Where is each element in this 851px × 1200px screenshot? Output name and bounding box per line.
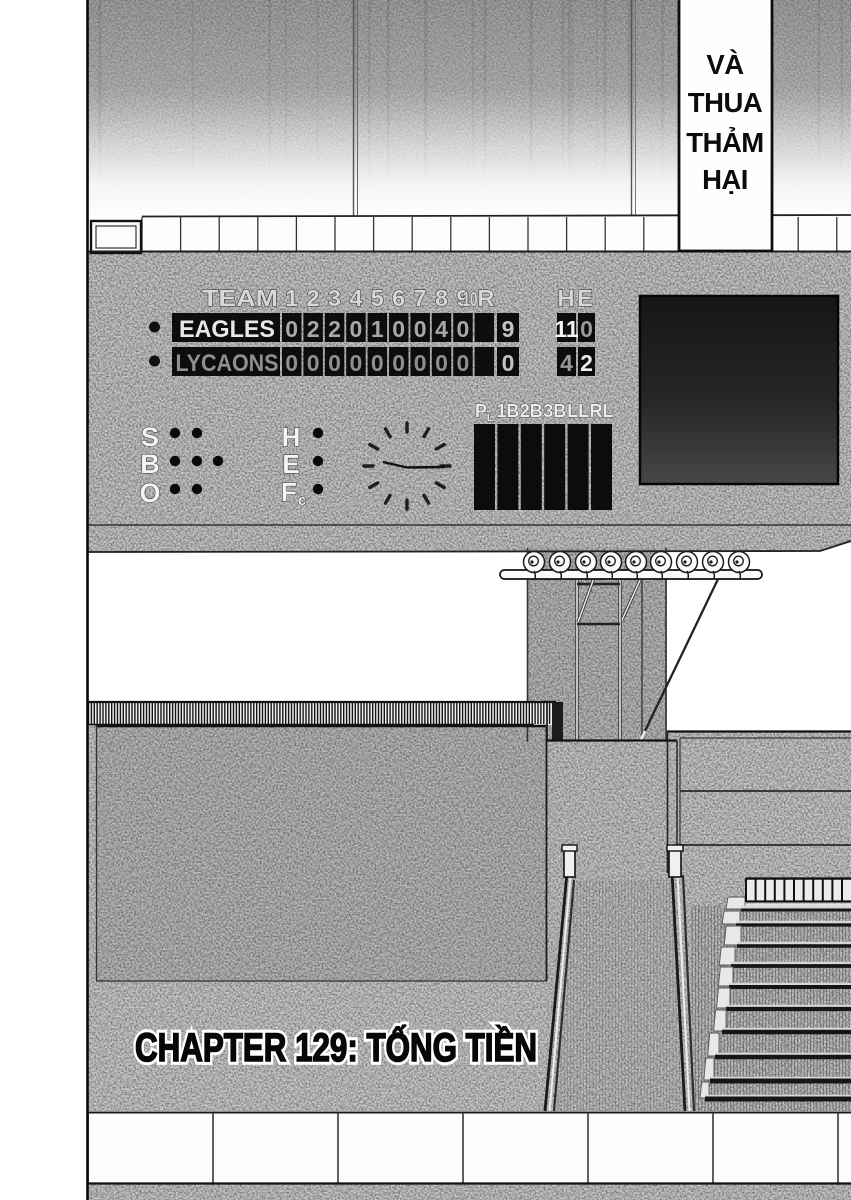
svg-text:0: 0	[457, 316, 470, 342]
svg-text:H: H	[558, 285, 575, 311]
svg-text:9: 9	[502, 316, 515, 342]
svg-text:O: O	[139, 478, 160, 508]
svg-text:LL: LL	[567, 401, 589, 421]
svg-text:2: 2	[307, 316, 320, 342]
svg-text:7: 7	[414, 285, 427, 311]
svg-text:5: 5	[371, 285, 384, 311]
svg-text:0: 0	[457, 350, 470, 376]
svg-text:10: 10	[463, 289, 478, 311]
svg-text:11: 11	[554, 316, 579, 342]
svg-text:c: c	[298, 492, 306, 509]
svg-text:0: 0	[328, 350, 341, 376]
svg-text:2B: 2B	[520, 401, 543, 421]
svg-text:0: 0	[392, 350, 405, 376]
svg-text:F: F	[281, 477, 297, 507]
svg-text:1: 1	[371, 316, 384, 342]
svg-text:4: 4	[560, 350, 573, 376]
svg-text:H: H	[282, 422, 301, 452]
svg-text:0: 0	[371, 350, 384, 376]
svg-text:E: E	[577, 285, 593, 311]
svg-text:0: 0	[580, 316, 593, 342]
svg-text:P: P	[475, 401, 487, 421]
svg-text:HẠI: HẠI	[702, 164, 748, 195]
svg-text:RL: RL	[590, 401, 614, 421]
svg-text:VÀ: VÀ	[706, 49, 744, 80]
svg-text:R: R	[478, 285, 495, 311]
svg-text:1B: 1B	[496, 401, 519, 421]
svg-text:4: 4	[349, 285, 362, 311]
svg-text:3B: 3B	[543, 401, 566, 421]
svg-text:E: E	[282, 449, 299, 479]
svg-text:THẢM: THẢM	[686, 126, 763, 158]
svg-text:L: L	[487, 412, 494, 424]
svg-text:0: 0	[350, 350, 363, 376]
svg-text:THUA: THUA	[688, 87, 763, 118]
svg-text:1: 1	[285, 285, 298, 311]
svg-text:0: 0	[414, 350, 427, 376]
svg-text:0: 0	[435, 350, 448, 376]
svg-text:8: 8	[435, 285, 448, 311]
svg-text:LYCAONS: LYCAONS	[176, 350, 279, 377]
svg-text:3: 3	[328, 285, 341, 311]
svg-text:6: 6	[392, 285, 405, 311]
svg-text:0: 0	[285, 350, 298, 376]
svg-text:2: 2	[307, 285, 320, 311]
svg-text:TEAM: TEAM	[202, 285, 278, 311]
svg-text:2: 2	[580, 350, 593, 376]
svg-text:0: 0	[414, 316, 427, 342]
svg-text:4: 4	[435, 316, 448, 342]
svg-text:0: 0	[392, 316, 405, 342]
svg-text:2: 2	[328, 316, 341, 342]
svg-text:0: 0	[307, 350, 320, 376]
svg-text:B: B	[140, 449, 160, 479]
svg-text:CHAPTER 129: TỐNG TIỀN: CHAPTER 129: TỐNG TIỀN	[135, 1024, 537, 1070]
svg-text:S: S	[141, 422, 159, 452]
svg-text:EAGLES: EAGLES	[179, 316, 275, 343]
svg-text:0: 0	[502, 350, 515, 376]
svg-text:0: 0	[285, 316, 298, 342]
svg-text:0: 0	[350, 316, 363, 342]
